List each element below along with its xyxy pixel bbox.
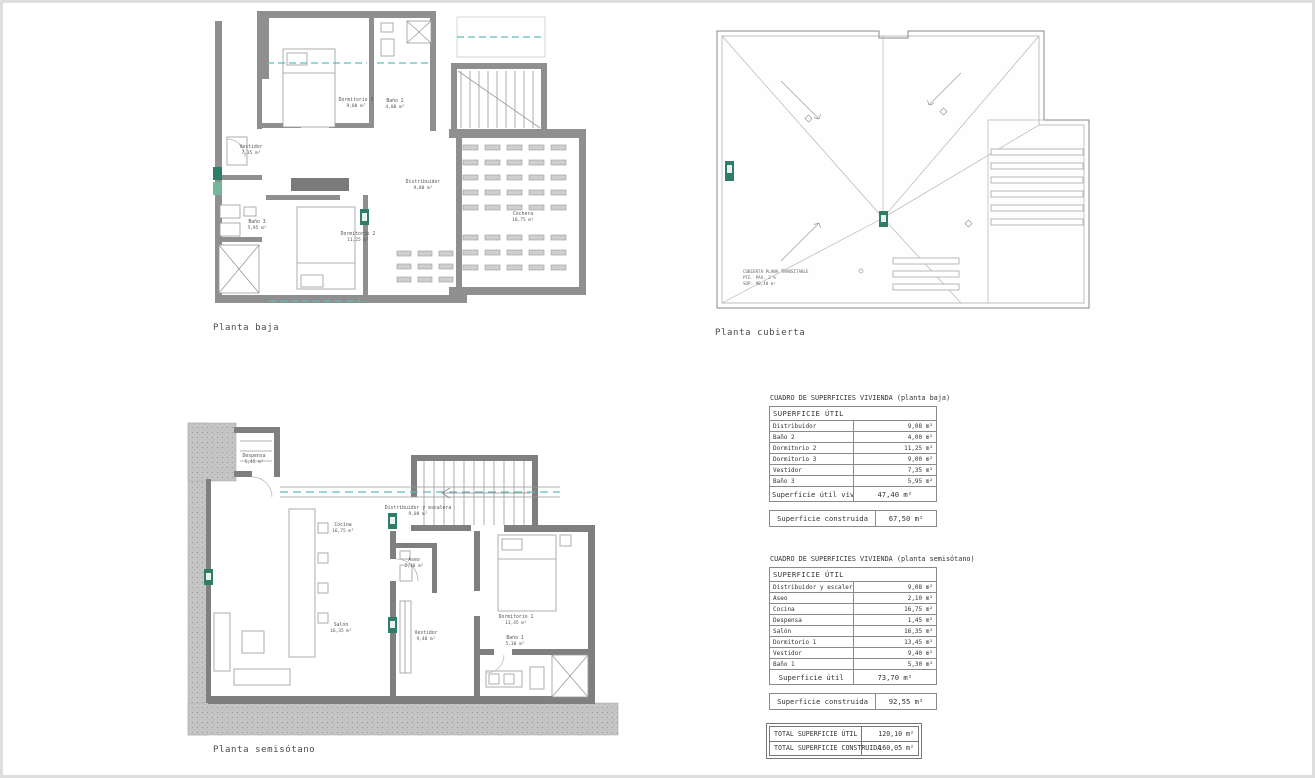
room-area: 18,75 m² — [512, 217, 534, 223]
room-label-cell: Dormitorio 3 — [770, 454, 854, 465]
table-row: Vestidor7,35 m² — [770, 465, 937, 476]
sink-icon — [381, 23, 393, 32]
total-label-cell: TOTAL SUPERFICIE ÚTIL — [770, 727, 862, 742]
sideboard-icon — [291, 178, 349, 191]
toilet-icon — [381, 39, 394, 56]
room-area: 9,40 m² — [417, 636, 436, 642]
plan-sheet: Vestidor 7,35 m² Baño 3 5,95 m² Dormitor… — [0, 0, 1315, 778]
surface-tables-column: CUADRO DE SUPERFICIES VIVIENDA (planta b… — [769, 394, 945, 756]
room-label: Dormitorio 3 — [339, 97, 374, 103]
room-label: Distribuidor y escalera — [385, 505, 452, 511]
window-band — [280, 487, 560, 497]
area-value-cell: 16,35 m² — [853, 626, 937, 637]
built-value-cell: 67,50 m² — [876, 511, 937, 527]
roof-outline — [717, 31, 1089, 308]
total-value-cell: 120,10 m² — [862, 727, 919, 742]
sink-icon — [244, 207, 256, 216]
area-value-cell: 9,08 m² — [853, 582, 937, 593]
stair-icon — [458, 71, 540, 128]
table-row: Dormitorio 39,00 m² — [770, 454, 937, 465]
area-value-cell: 16,75 m² — [853, 604, 937, 615]
toilet-icon — [530, 667, 544, 689]
table-row: Distribuidor9,08 m² — [770, 421, 937, 432]
room-area: 9,00 m² — [347, 103, 366, 109]
area-value-cell: 2,10 m² — [853, 593, 937, 604]
area-value-cell: 9,00 m² — [853, 454, 937, 465]
room-area: 16,75 m² — [332, 528, 354, 534]
room-area: 2,10 m² — [405, 563, 424, 569]
built-label-cell: Superficie construida — [770, 694, 876, 710]
area-value-cell: 1,45 m² — [853, 615, 937, 626]
table-header-row: SUPERFICIE ÚTIL — [770, 407, 937, 421]
kitchen-island-icon — [289, 509, 315, 657]
total-value-cell: 73,70 m² — [853, 670, 937, 685]
room-label-cell: Baño 3 — [770, 476, 854, 487]
walls — [215, 11, 586, 303]
table-row: Distribuidor y escalera9,08 m² — [770, 582, 937, 593]
carport-louvers — [397, 145, 566, 282]
table-superficies-semisotano: SUPERFICIE ÚTIL Distribuidor y escalera9… — [769, 567, 937, 685]
table-construida-semisotano: Superficie construida 92,55 m² — [769, 693, 937, 710]
floor-plan-planta-semisotano: Despensa 1,45 m² Cocina 16,75 m² Distrib… — [186, 421, 620, 737]
total-label-cell: TOTAL SUPERFICIE CONSTRUIDA — [770, 741, 862, 756]
sofa-icon — [234, 669, 290, 685]
area-value-cell: 5,95 m² — [853, 476, 937, 487]
roof-note-line: PTE. PAV. 2 % — [743, 275, 776, 280]
area-value-cell: 13,45 m² — [853, 637, 937, 648]
room-label-cell: Cocina — [770, 604, 854, 615]
room-area: 4,00 m² — [386, 104, 405, 110]
roof-note-line: CUBIERTA PLANA TRANSITABLE — [743, 269, 809, 274]
room-area: 1,45 m² — [245, 459, 264, 465]
room-label-cell: Salón — [770, 626, 854, 637]
room-label: Cochera — [513, 211, 533, 217]
room-label: Cocina — [334, 522, 351, 528]
table-row: Baño 24,00 m² — [770, 432, 937, 443]
room-area: 5,30 m² — [506, 641, 525, 647]
stair-icon — [424, 461, 530, 525]
table-caption-semisotano: CUADRO DE SUPERFICIES VIVIENDA (planta s… — [770, 555, 945, 563]
room-labels: Despensa 1,45 m² Cocina 16,75 m² Distrib… — [242, 453, 533, 647]
room-label-cell: Despensa — [770, 615, 854, 626]
room-area: 11,25 m² — [347, 237, 369, 243]
room-area: 13,45 m² — [505, 620, 527, 626]
bidet-icon — [220, 223, 240, 236]
room-label: Vestidor — [239, 144, 262, 150]
total-label-cell: Superficie útil vivienda — [770, 487, 854, 502]
room-label-cell: Vestidor — [770, 465, 854, 476]
plan-title-baja: Planta baja — [213, 323, 279, 333]
room-label-cell: Distribuidor y escalera — [770, 582, 854, 593]
area-value-cell: 5,30 m² — [853, 659, 937, 670]
table-row: Salón16,35 m² — [770, 626, 937, 637]
room-label: Baño 1 — [506, 635, 523, 641]
plan-title-cubierta: Planta cubierta — [715, 328, 805, 338]
table-totals: TOTAL SUPERFICIE ÚTIL 120,10 m² TOTAL SU… — [769, 726, 919, 756]
room-label: Vestidor — [414, 630, 437, 636]
floor-plan-planta-cubierta: CUBIERTA PLANA TRANSITABLE PTE. PAV. 2 %… — [711, 21, 1103, 319]
room-area: 16,35 m² — [330, 628, 352, 634]
area-value-cell: 9,08 m² — [853, 421, 937, 432]
toilet-icon — [220, 205, 240, 218]
table-row: Baño 35,95 m² — [770, 476, 937, 487]
room-label-cell: Aseo — [770, 593, 854, 604]
room-area: 9,08 m² — [414, 185, 433, 191]
room-label: Aseo — [408, 557, 420, 563]
roof-note-line: SUP. 90,40 m² — [743, 281, 776, 286]
nightstand-icon — [560, 535, 571, 546]
total-label-cell: Superficie útil — [770, 670, 854, 685]
sofa-icon — [214, 613, 230, 671]
area-value-cell: 4,00 m² — [853, 432, 937, 443]
room-label: Baño 2 — [386, 98, 403, 104]
room-area: 5,95 m² — [248, 225, 267, 231]
table-row: TOTAL SUPERFICIE CONSTRUIDA 160,05 m² — [770, 741, 919, 756]
table-row: Dormitorio 113,45 m² — [770, 637, 937, 648]
total-value-cell: 47,40 m² — [853, 487, 937, 502]
room-label-cell: Baño 2 — [770, 432, 854, 443]
room-label-cell: Baño 1 — [770, 659, 854, 670]
table-superficies-baja: SUPERFICIE ÚTIL Distribuidor9,08 m² Baño… — [769, 406, 937, 502]
room-label-cell: Dormitorio 2 — [770, 443, 854, 454]
table-row: Aseo2,10 m² — [770, 593, 937, 604]
table-total-row: Superficie útil vivienda 47,40 m² — [770, 487, 937, 502]
room-label: Dormitorio 2 — [341, 231, 376, 237]
room-label: Distribuidor — [406, 179, 441, 185]
floor-plan-planta-baja: Vestidor 7,35 m² Baño 3 5,95 m² Dormitor… — [211, 11, 591, 313]
area-value-cell: 11,25 m² — [853, 443, 937, 454]
table-row: Superficie construida 92,55 m² — [770, 694, 937, 710]
table-row: Despensa1,45 m² — [770, 615, 937, 626]
room-label-cell: Dormitorio 1 — [770, 637, 854, 648]
room-label: Baño 3 — [248, 219, 265, 225]
room-area: 9,08 m² — [409, 511, 428, 517]
table-header-cell: SUPERFICIE ÚTIL — [770, 568, 937, 582]
table-header-cell: SUPERFICIE ÚTIL — [770, 407, 937, 421]
room-label: Despensa — [242, 453, 265, 459]
table-caption-baja: CUADRO DE SUPERFICIES VIVIENDA (planta b… — [770, 394, 945, 402]
table-row: Cocina16,75 m² — [770, 604, 937, 615]
table-row: TOTAL SUPERFICIE ÚTIL 120,10 m² — [770, 727, 919, 742]
table-row: Superficie construida 67,50 m² — [770, 511, 937, 527]
room-label-cell: Distribuidor — [770, 421, 854, 432]
room-label: Dormitorio 1 — [499, 614, 534, 620]
area-value-cell: 9,40 m² — [853, 648, 937, 659]
plan-title-semisotano: Planta semisótano — [213, 745, 315, 755]
furniture — [214, 441, 588, 697]
table-total-row: Superficie útil 73,70 m² — [770, 670, 937, 685]
room-area: 7,35 m² — [242, 150, 261, 156]
table-row: Dormitorio 211,25 m² — [770, 443, 937, 454]
table-construida-baja: Superficie construida 67,50 m² — [769, 510, 937, 527]
built-label-cell: Superficie construida — [770, 511, 876, 527]
table-header-row: SUPERFICIE ÚTIL — [770, 568, 937, 582]
wardrobe-icon — [400, 601, 411, 673]
room-label: Salón — [334, 621, 349, 628]
area-value-cell: 7,35 m² — [853, 465, 937, 476]
table-row: Baño 15,30 m² — [770, 659, 937, 670]
built-value-cell: 92,55 m² — [876, 694, 937, 710]
room-label-cell: Vestidor — [770, 648, 854, 659]
table-icon — [242, 631, 264, 653]
table-row: Vestidor9,40 m² — [770, 648, 937, 659]
